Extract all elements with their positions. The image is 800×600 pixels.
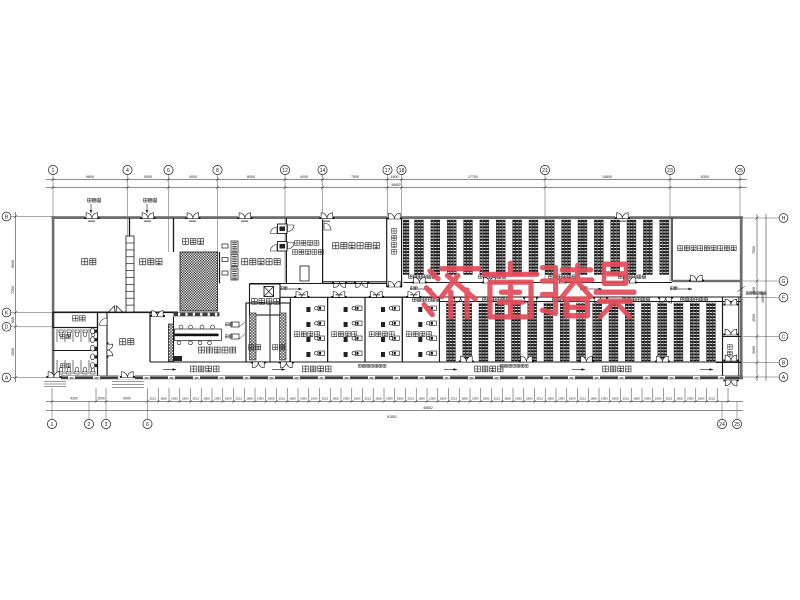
svg-text:1800: 1800 [569,396,576,400]
svg-text:1800: 1800 [160,396,167,400]
svg-text:2383: 2383 [472,396,479,400]
svg-text:2383: 2383 [171,396,178,400]
svg-text:4000: 4000 [300,175,308,179]
svg-text:7500: 7500 [752,246,756,254]
svg-text:1800: 1800 [418,396,425,400]
svg-text:1800: 1800 [676,396,683,400]
svg-text:1800: 1800 [590,396,597,400]
svg-text:1800: 1800 [526,396,533,400]
svg-text:2512: 2512 [408,396,415,400]
svg-text:1800: 1800 [225,396,232,400]
svg-text:2512: 2512 [580,396,587,400]
svg-text:2512: 2512 [236,396,243,400]
svg-text:6: 6 [167,168,170,174]
svg-text:17700: 17700 [468,175,478,179]
svg-text:1: 1 [51,422,54,428]
svg-text:F: F [782,295,785,301]
svg-text:2383: 2383 [214,396,221,400]
svg-text:21: 21 [542,168,548,174]
svg-text:24: 24 [719,422,725,428]
svg-text:1800: 1800 [289,396,296,400]
svg-text:1800: 1800 [698,396,705,400]
svg-text:9600: 9600 [11,260,15,268]
svg-text:2383: 2383 [386,396,393,400]
svg-text:9800: 9800 [86,175,94,179]
svg-text:1800: 1800 [354,396,361,400]
svg-text:1800: 1800 [440,396,447,400]
svg-text:1800: 1800 [633,396,640,400]
svg-text:1800: 1800 [391,175,399,179]
svg-text:2383: 2383 [558,396,565,400]
svg-text:H: H [782,216,786,222]
svg-text:1800: 1800 [483,396,490,400]
svg-text:2512: 2512 [451,396,458,400]
svg-text:2383: 2383 [644,396,651,400]
svg-text:D: D [5,325,9,331]
svg-text:5000: 5000 [144,175,152,179]
svg-text:2383: 2383 [429,396,436,400]
svg-text:8300: 8300 [701,175,709,179]
svg-text:1800: 1800 [655,396,662,400]
svg-text:4: 4 [126,168,129,174]
svg-text:2383: 2383 [257,396,264,400]
svg-text:2383: 2383 [687,396,694,400]
svg-text:900: 900 [11,317,15,323]
svg-text:2512: 2512 [322,396,329,400]
svg-text:7500: 7500 [351,175,359,179]
svg-text:4500: 4500 [11,348,15,356]
svg-text:2383: 2383 [515,396,522,400]
svg-text:1800: 1800 [268,396,275,400]
svg-text:4000: 4000 [189,175,197,179]
svg-text:25: 25 [737,168,743,174]
svg-text:1800: 1800 [246,396,253,400]
svg-text:5000: 5000 [123,396,131,400]
svg-text:23: 23 [667,168,673,174]
svg-text:1800: 1800 [182,396,189,400]
svg-text:C: C [782,334,786,340]
svg-text:1800: 1800 [332,396,339,400]
svg-text:25: 25 [734,422,740,428]
svg-text:12: 12 [282,168,288,174]
svg-text:18: 18 [399,168,405,174]
svg-text:3: 3 [105,422,108,428]
svg-text:4500: 4500 [752,314,756,322]
svg-text:2512: 2512 [365,396,372,400]
svg-text:14600: 14600 [602,175,612,179]
svg-text:2512: 2512 [666,396,673,400]
svg-text:2512: 2512 [537,396,544,400]
svg-text:4300: 4300 [70,396,78,400]
svg-text:8000: 8000 [247,175,255,179]
svg-text:2383: 2383 [601,396,608,400]
svg-text:2383: 2383 [300,396,307,400]
svg-text:8: 8 [216,168,219,174]
svg-text:2512: 2512 [193,396,200,400]
svg-text:1800: 1800 [375,396,382,400]
svg-text:1800: 1800 [203,396,210,400]
svg-text:1800: 1800 [612,396,619,400]
svg-text:2383: 2383 [343,396,350,400]
svg-text:3000: 3000 [752,346,756,354]
svg-text:1800: 1800 [461,396,468,400]
svg-text:6: 6 [146,422,149,428]
svg-text:2512: 2512 [709,396,716,400]
svg-text:1800: 1800 [547,396,554,400]
svg-text:G: G [782,279,786,285]
svg-text:81852: 81852 [387,415,397,419]
svg-text:46852: 46852 [391,183,401,187]
svg-text:1800: 1800 [311,396,318,400]
svg-text:46852: 46852 [423,406,433,410]
svg-text:1800: 1800 [397,396,404,400]
svg-text:1: 1 [52,168,55,174]
svg-text:1800: 1800 [504,396,511,400]
svg-text:900: 900 [752,287,756,293]
svg-text:2: 2 [88,422,91,428]
svg-text:14: 14 [320,168,326,174]
svg-text:2512: 2512 [279,396,286,400]
svg-text:7200: 7200 [11,286,15,294]
svg-text:2512: 2512 [494,396,501,400]
svg-text:2512: 2512 [623,396,630,400]
svg-text:2512: 2512 [150,396,157,400]
svg-text:17: 17 [385,168,391,174]
svg-text:2000: 2000 [97,396,105,400]
